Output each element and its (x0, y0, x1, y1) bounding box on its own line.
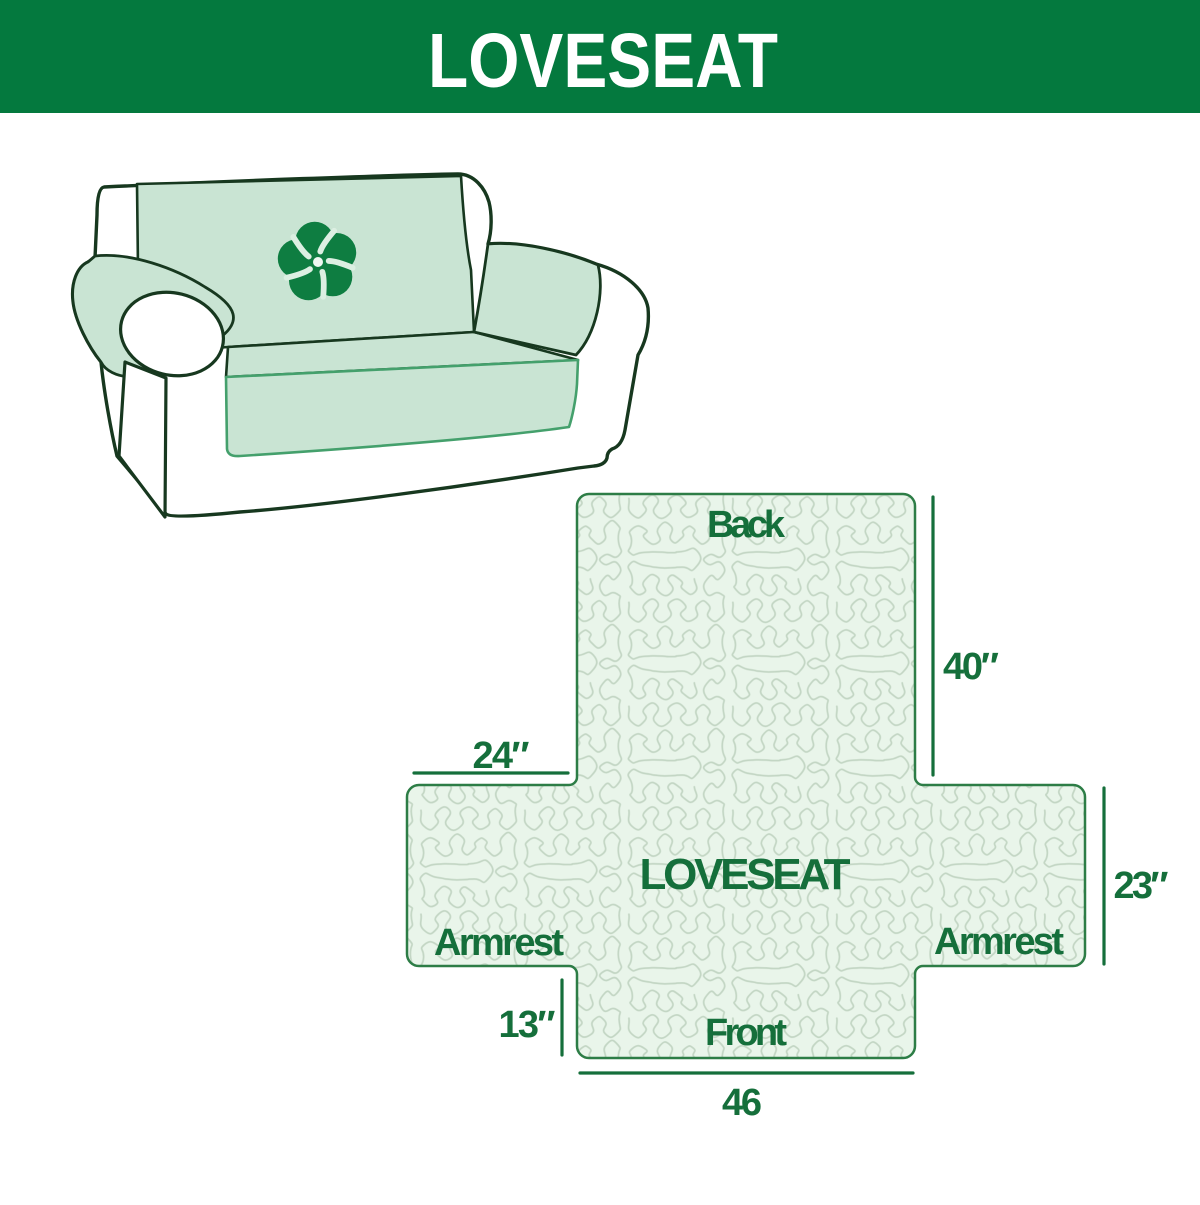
svg-text:23″: 23″ (1114, 865, 1169, 907)
svg-text:LOVESEAT: LOVESEAT (640, 850, 851, 899)
svg-text:24″: 24″ (473, 735, 530, 777)
svg-text:46: 46 (722, 1082, 762, 1124)
svg-text:Back: Back (707, 504, 786, 546)
svg-text:40″: 40″ (943, 646, 999, 688)
svg-text:LOVESEAT: LOVESEAT (428, 18, 778, 104)
svg-text:Armrest: Armrest (934, 921, 1064, 963)
svg-text:13″: 13″ (499, 1004, 556, 1046)
svg-text:Front: Front (705, 1012, 787, 1054)
svg-text:Armrest: Armrest (434, 922, 564, 964)
